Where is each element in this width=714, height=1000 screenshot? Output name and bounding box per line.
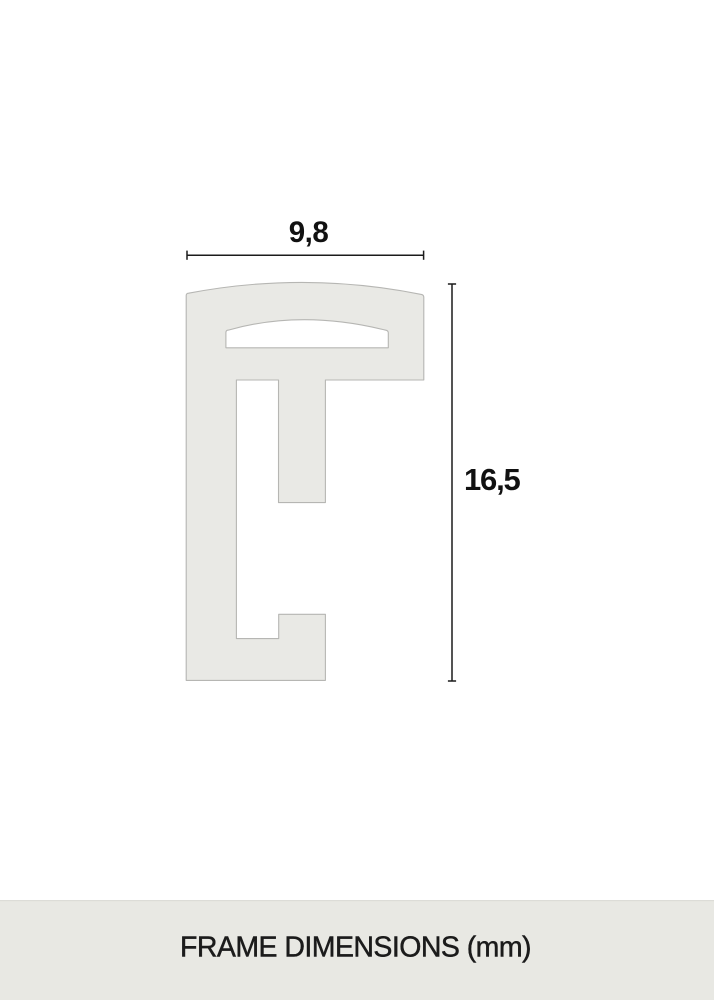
svg-text:16,5: 16,5 <box>464 462 520 497</box>
svg-text:FRAME DIMENSIONS (mm): FRAME DIMENSIONS (mm) <box>180 932 531 964</box>
svg-text:9,8: 9,8 <box>289 216 329 249</box>
